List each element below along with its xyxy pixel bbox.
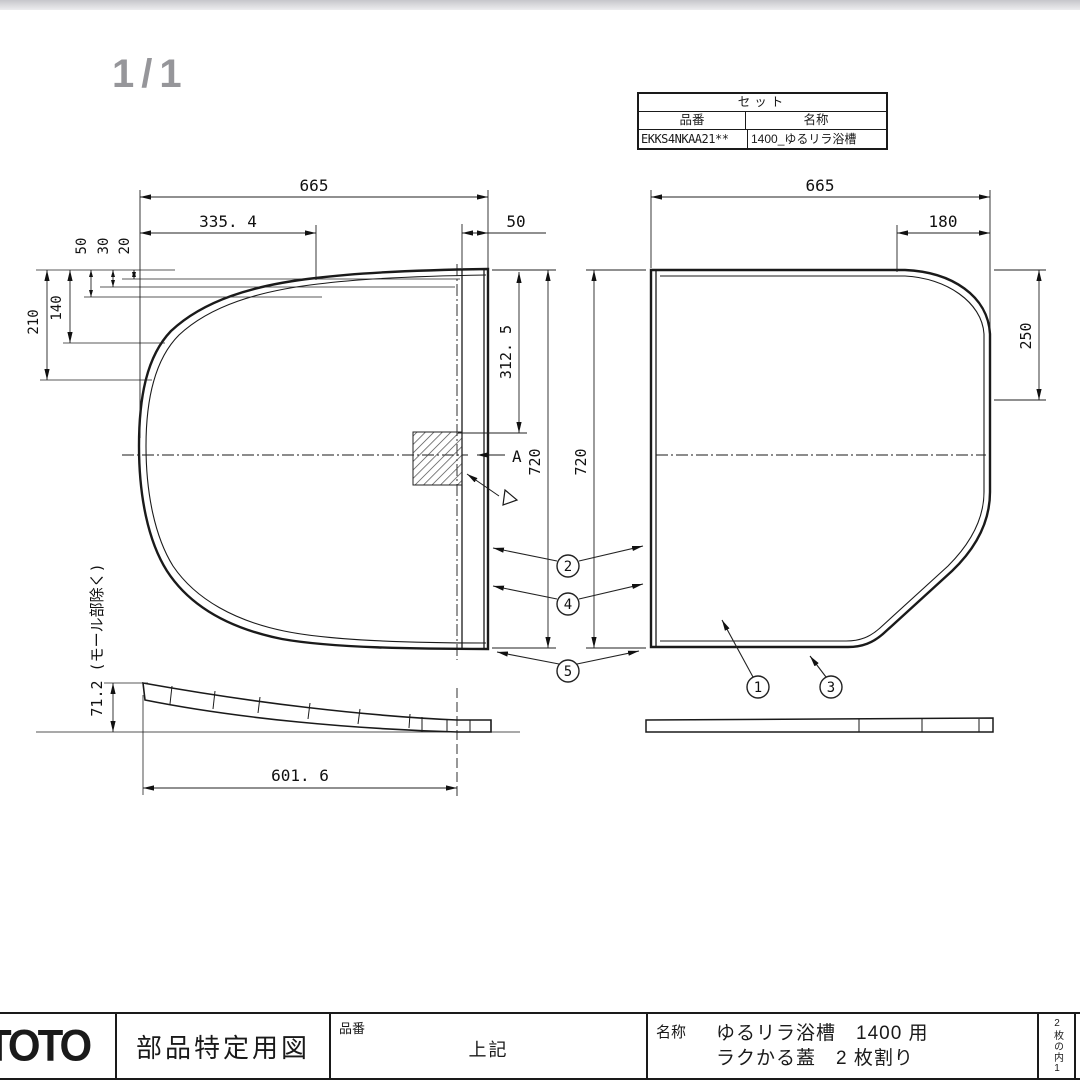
dim-left-height: 720 [526,448,544,475]
title-block-edge-cell [1076,1014,1080,1078]
finish-triangle-icon [503,490,517,505]
right-lid-profile [646,718,993,732]
left-lid-plan [122,264,517,660]
dim-offset-30: 30 [96,238,112,255]
name-lines: ゆるリラ浴槽 1400 用 ラクかる蓋 2 枚割り [716,1021,929,1071]
dim-right-width: 665 [806,176,835,195]
part-number-value: 上記 [331,1036,646,1062]
name-line-2: ラクかる蓋 2 枚割り [716,1046,929,1071]
dim-left-width: 665 [300,176,329,195]
callout-4-label: 4 [564,597,572,613]
dim-left-210: 210 [26,309,42,334]
drawing-canvas: A [0,0,1080,1010]
section-a-label: A [512,447,522,466]
callout-3-label: 3 [827,680,835,696]
title-block-name-cell: 名称 ゆるリラ浴槽 1400 用 ラクかる蓋 2 枚割り [648,1014,1039,1078]
callout-1-label: 1 [754,680,762,696]
name-label: 名称 [656,1021,686,1042]
dim-right-side: 250 [1017,322,1035,349]
callout-2-label: 2 [564,559,572,575]
dim-strip-width: 50 [506,212,525,231]
dim-offset-50: 50 [74,238,90,255]
dim-left-partial: 335. 4 [199,212,257,231]
title-block-sheet-cell: 2枚の内1 [1039,1014,1076,1078]
left-lid-dimensions [36,190,646,648]
dim-right-partial: 180 [929,212,958,231]
finish-leader [467,474,499,496]
profile-wedge-outline [143,683,491,732]
right-lid-plan [651,270,990,647]
sheet-note: 2枚の内1 [1052,1018,1062,1075]
toto-logo: TOTO [0,1021,89,1071]
dim-section-offset: 312. 5 [497,325,515,379]
title-block: TOTO 部品特定用図 品番 上記 名称 ゆるリラ浴槽 1400 用 ラクかる蓋… [0,1012,1080,1080]
title-block-doc-type: 部品特定用図 [117,1014,331,1078]
right-lid-dimensions [651,190,1046,400]
dim-right-height: 720 [572,448,590,475]
title-block-part-cell: 品番 上記 [331,1014,648,1078]
callouts [493,546,842,698]
right-lid-outline [651,270,990,647]
dim-offset-20: 20 [117,238,133,255]
part-number-label: 品番 [339,1018,365,1037]
dim-profile-length: 601. 6 [271,766,329,785]
section-hatch-square [413,432,462,485]
drawing-sheet: 1/1 セット 品番 名称 EKKS4NKAA21** 1400_ゆるリラ浴槽 [0,0,1080,1080]
callout-5-label: 5 [564,664,572,680]
name-line-1: ゆるリラ浴槽 1400 用 [716,1021,929,1046]
dim-profile-height: 71.2 (モール部除く) [88,563,106,716]
title-block-logo-cell: TOTO [0,1014,117,1078]
profile-bar-outline [646,718,993,732]
dim-left-140: 140 [49,295,65,320]
